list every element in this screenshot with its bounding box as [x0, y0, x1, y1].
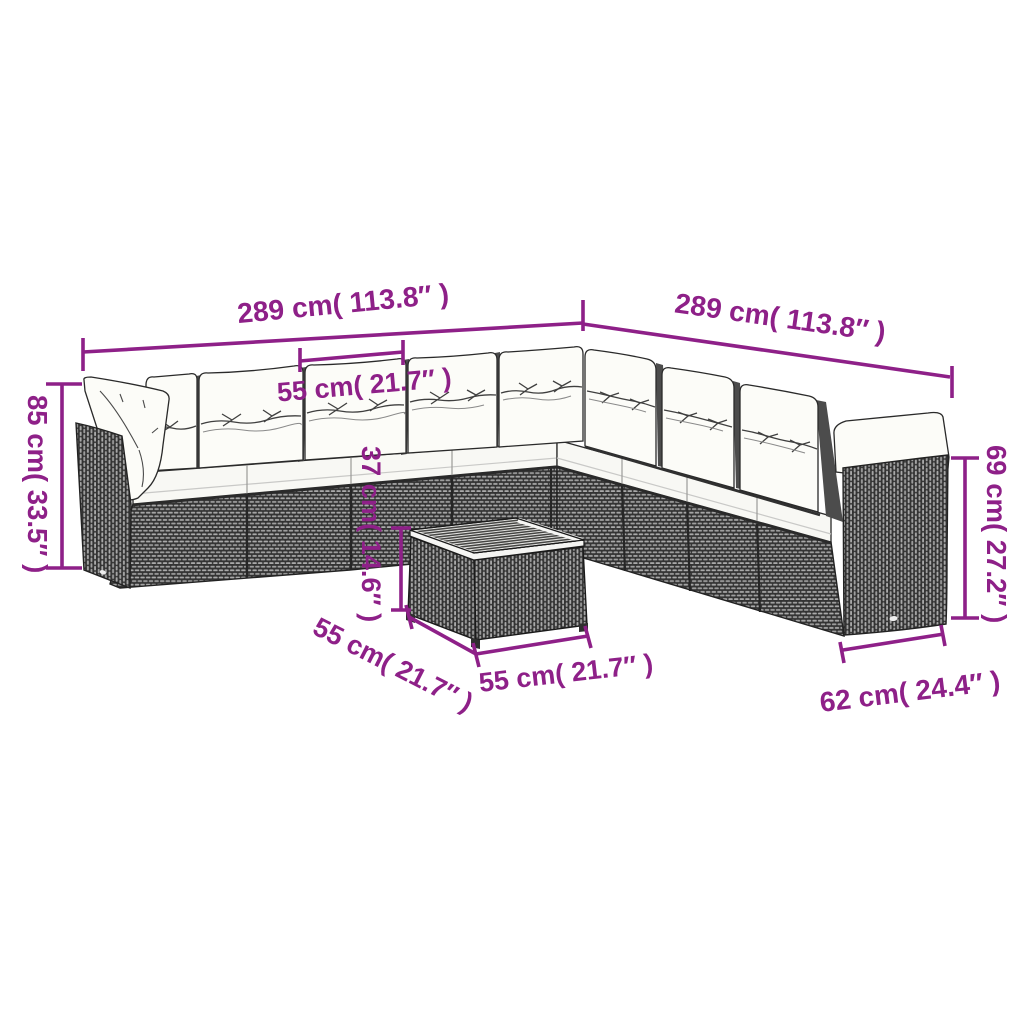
- svg-text:85 cm( 33.5″ ): 85 cm( 33.5″ ): [22, 395, 53, 573]
- svg-text:289 cm( 113.8″ ): 289 cm( 113.8″ ): [673, 286, 888, 347]
- svg-text:289 cm( 113.8″ ): 289 cm( 113.8″ ): [236, 277, 451, 329]
- svg-text:69 cm( 27.2″ ): 69 cm( 27.2″ ): [981, 445, 1012, 623]
- svg-text:55 cm( 21.7″ ): 55 cm( 21.7″ ): [477, 648, 654, 698]
- svg-text:62 cm( 24.4″ ): 62 cm( 24.4″ ): [818, 665, 1002, 718]
- svg-text:37 cm( 14.6″ ): 37 cm( 14.6″ ): [356, 446, 387, 622]
